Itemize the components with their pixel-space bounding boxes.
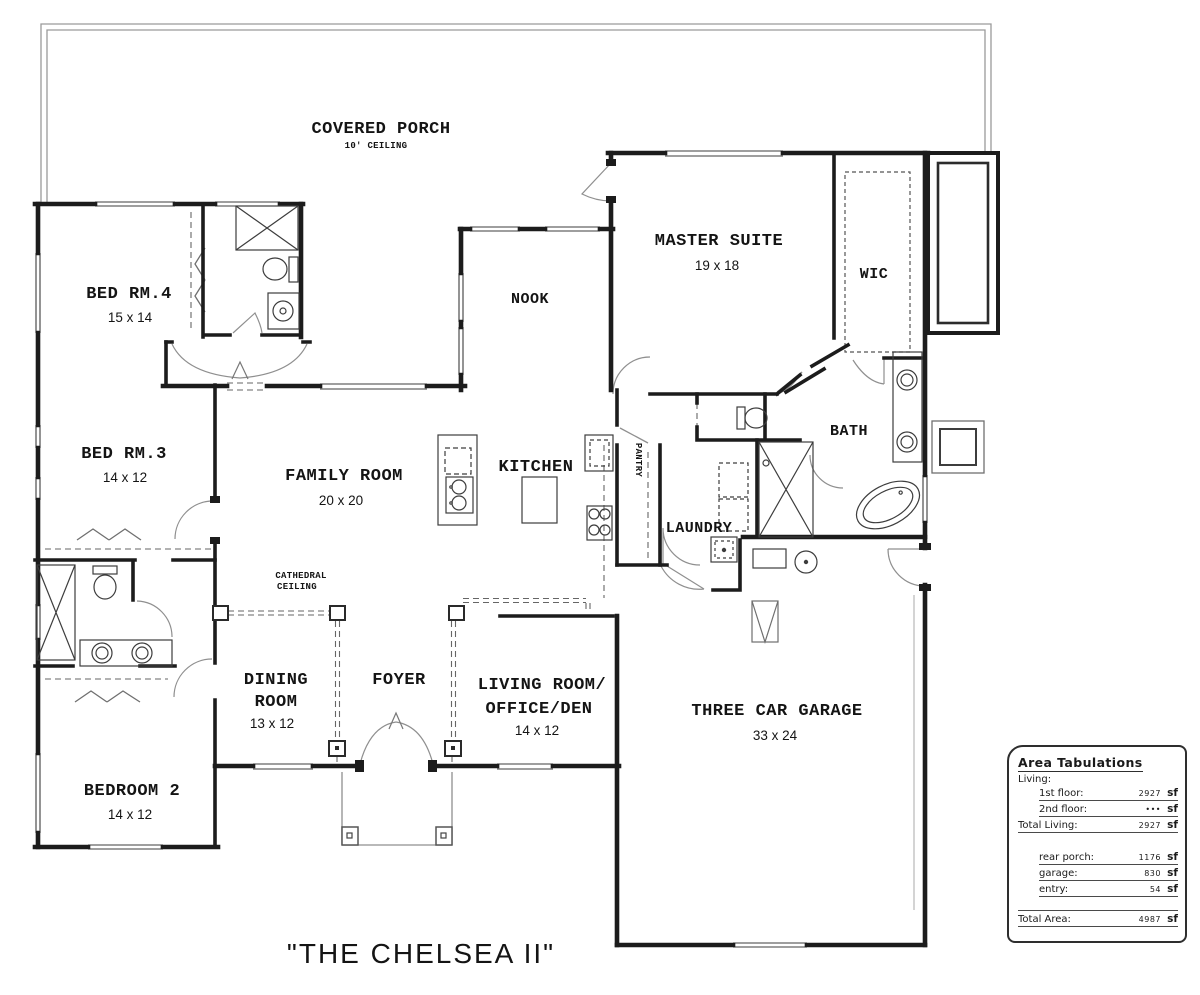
label-bedroom-2: BEDROOM 2 [84,782,180,801]
label-nook: NOOK [511,291,549,308]
tab-row-1st-floor: 1st floor: 2927 sf [1039,785,1178,801]
label-cathedral-1: CATHEDRAL [275,571,326,581]
label-covered-porch-note: 10' CEILING [345,141,408,151]
laundry-fixtures [711,463,748,562]
tab-row-garage: garage: 830 sf [1039,865,1178,881]
label-family-room: FAMILY ROOM [285,467,403,486]
post-dots [335,746,455,750]
plan-title: "THE CHELSEA II" [287,938,555,969]
dims-master-suite: 19 x 18 [695,258,739,273]
label-bed-rm-3: BED RM.3 [81,445,167,464]
dims-bed-rm-4: 15 x 14 [108,310,153,325]
area-tabulations-title: Area Tabulations [1018,755,1143,772]
wic-shelving [845,172,910,352]
dims-garage: 33 x 24 [753,728,798,743]
label-pantry: PANTRY [633,443,643,478]
label-dining-1: DINING [244,671,308,690]
label-wic: WIC [860,266,889,283]
ac-pad [932,421,984,473]
label-living-2: OFFICE/DEN [485,700,592,719]
floor-plan-sheet: COVERED PORCH 10' CEILING BED RM.4 15 x … [0,0,1200,995]
label-bath: BATH [830,423,868,440]
bathroom-fixtures [37,206,927,666]
living-header: Living: [1018,774,1177,785]
tab-row-total-living: Total Living: 2927 sf [1018,817,1178,833]
tab-divider-rule [1018,897,1178,911]
label-cathedral-2: CEILING [277,582,317,592]
label-laundry: LAUNDRY [666,520,733,537]
dims-bedroom-2: 14 x 12 [108,807,152,822]
area-tabulations-panel: Area Tabulations Living: 1st floor: 2927… [1007,745,1187,943]
window-bay-box [928,153,998,333]
dims-dining: 13 x 12 [250,716,294,731]
label-foyer: FOYER [372,671,426,690]
label-dining-2: ROOM [255,693,298,712]
label-bed-rm-4: BED RM.4 [86,285,172,304]
label-kitchen: KITCHEN [499,458,574,477]
tab-row-rear-porch: rear porch: 1176 sf [1039,849,1178,865]
label-master-suite: MASTER SUITE [655,232,783,251]
dims-living: 14 x 12 [515,723,559,738]
porch-outline [41,24,991,204]
entry-porch-column-dots [347,833,446,838]
tab-row-2nd-floor: 2nd floor: ••• sf [1039,801,1178,817]
label-living-1: LIVING ROOM/ [478,676,606,695]
label-garage: THREE CAR GARAGE [691,702,862,721]
label-covered-porch: COVERED PORCH [311,120,450,139]
entry-porch-columns [342,827,452,845]
tab-row-entry: entry: 54 sf [1039,881,1178,897]
dims-family-room: 20 x 20 [319,493,363,508]
dims-bed-rm-3: 14 x 12 [103,470,147,485]
tab-row-total-area: Total Area: 4987 sf [1018,911,1178,927]
kitchen-fixtures [438,435,613,540]
